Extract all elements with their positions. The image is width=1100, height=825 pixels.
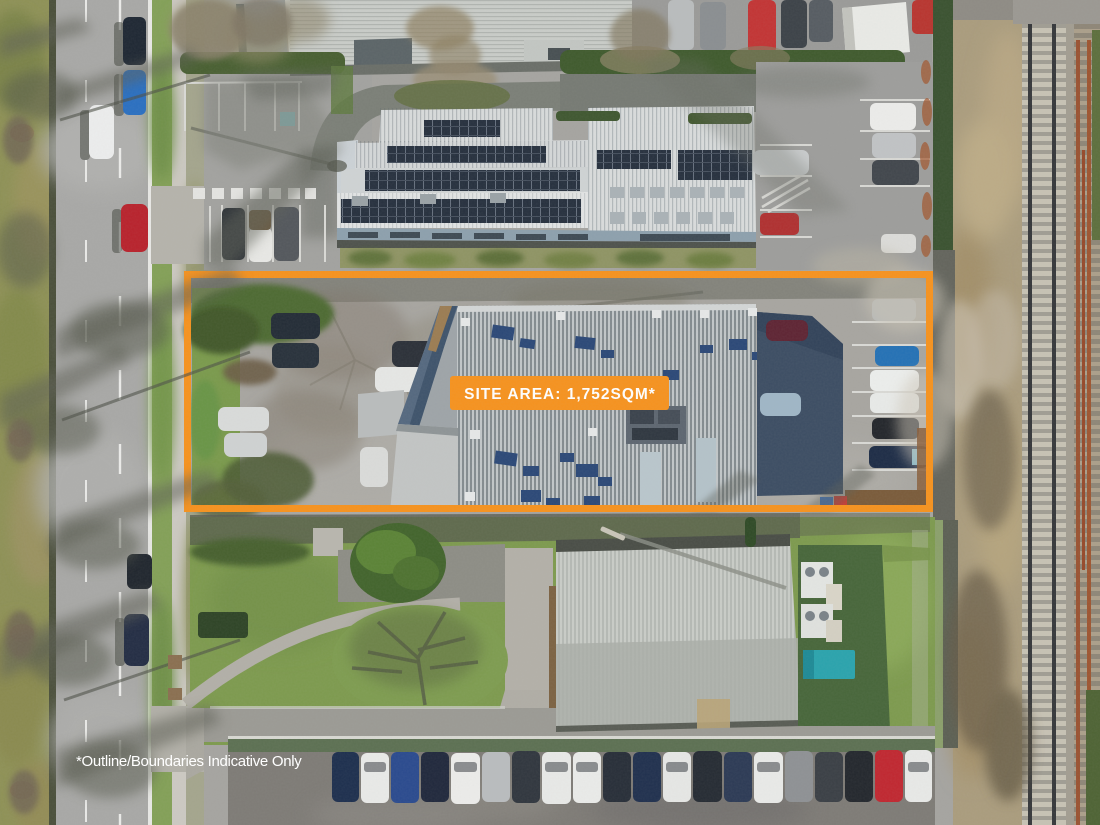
svg-text:*Outline/Boundaries Indicative: *Outline/Boundaries Indicative Only bbox=[76, 753, 302, 770]
